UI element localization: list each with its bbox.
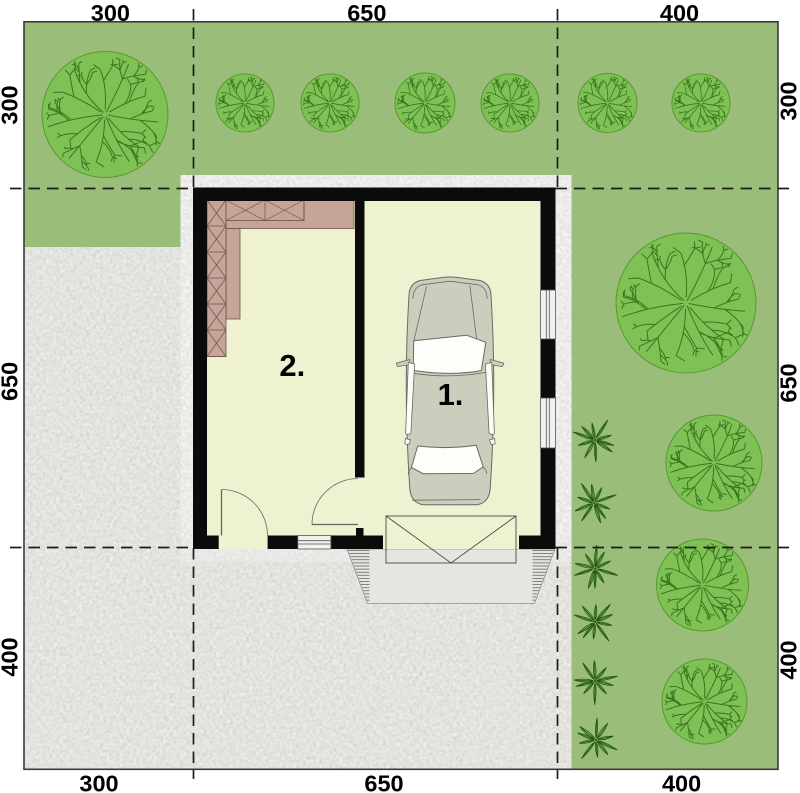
svg-text:1.: 1. — [438, 377, 464, 412]
svg-text:650: 650 — [347, 0, 386, 26]
svg-text:400: 400 — [776, 640, 800, 679]
svg-text:650: 650 — [776, 363, 800, 402]
svg-text:400: 400 — [0, 637, 22, 676]
svg-text:400: 400 — [660, 0, 699, 26]
svg-text:300: 300 — [79, 771, 118, 793]
svg-text:650: 650 — [0, 362, 22, 401]
svg-text:2.: 2. — [279, 348, 305, 383]
svg-text:400: 400 — [662, 771, 701, 793]
svg-text:300: 300 — [776, 81, 800, 120]
svg-text:300: 300 — [0, 85, 22, 124]
svg-text:650: 650 — [364, 771, 403, 793]
svg-text:300: 300 — [91, 0, 130, 26]
